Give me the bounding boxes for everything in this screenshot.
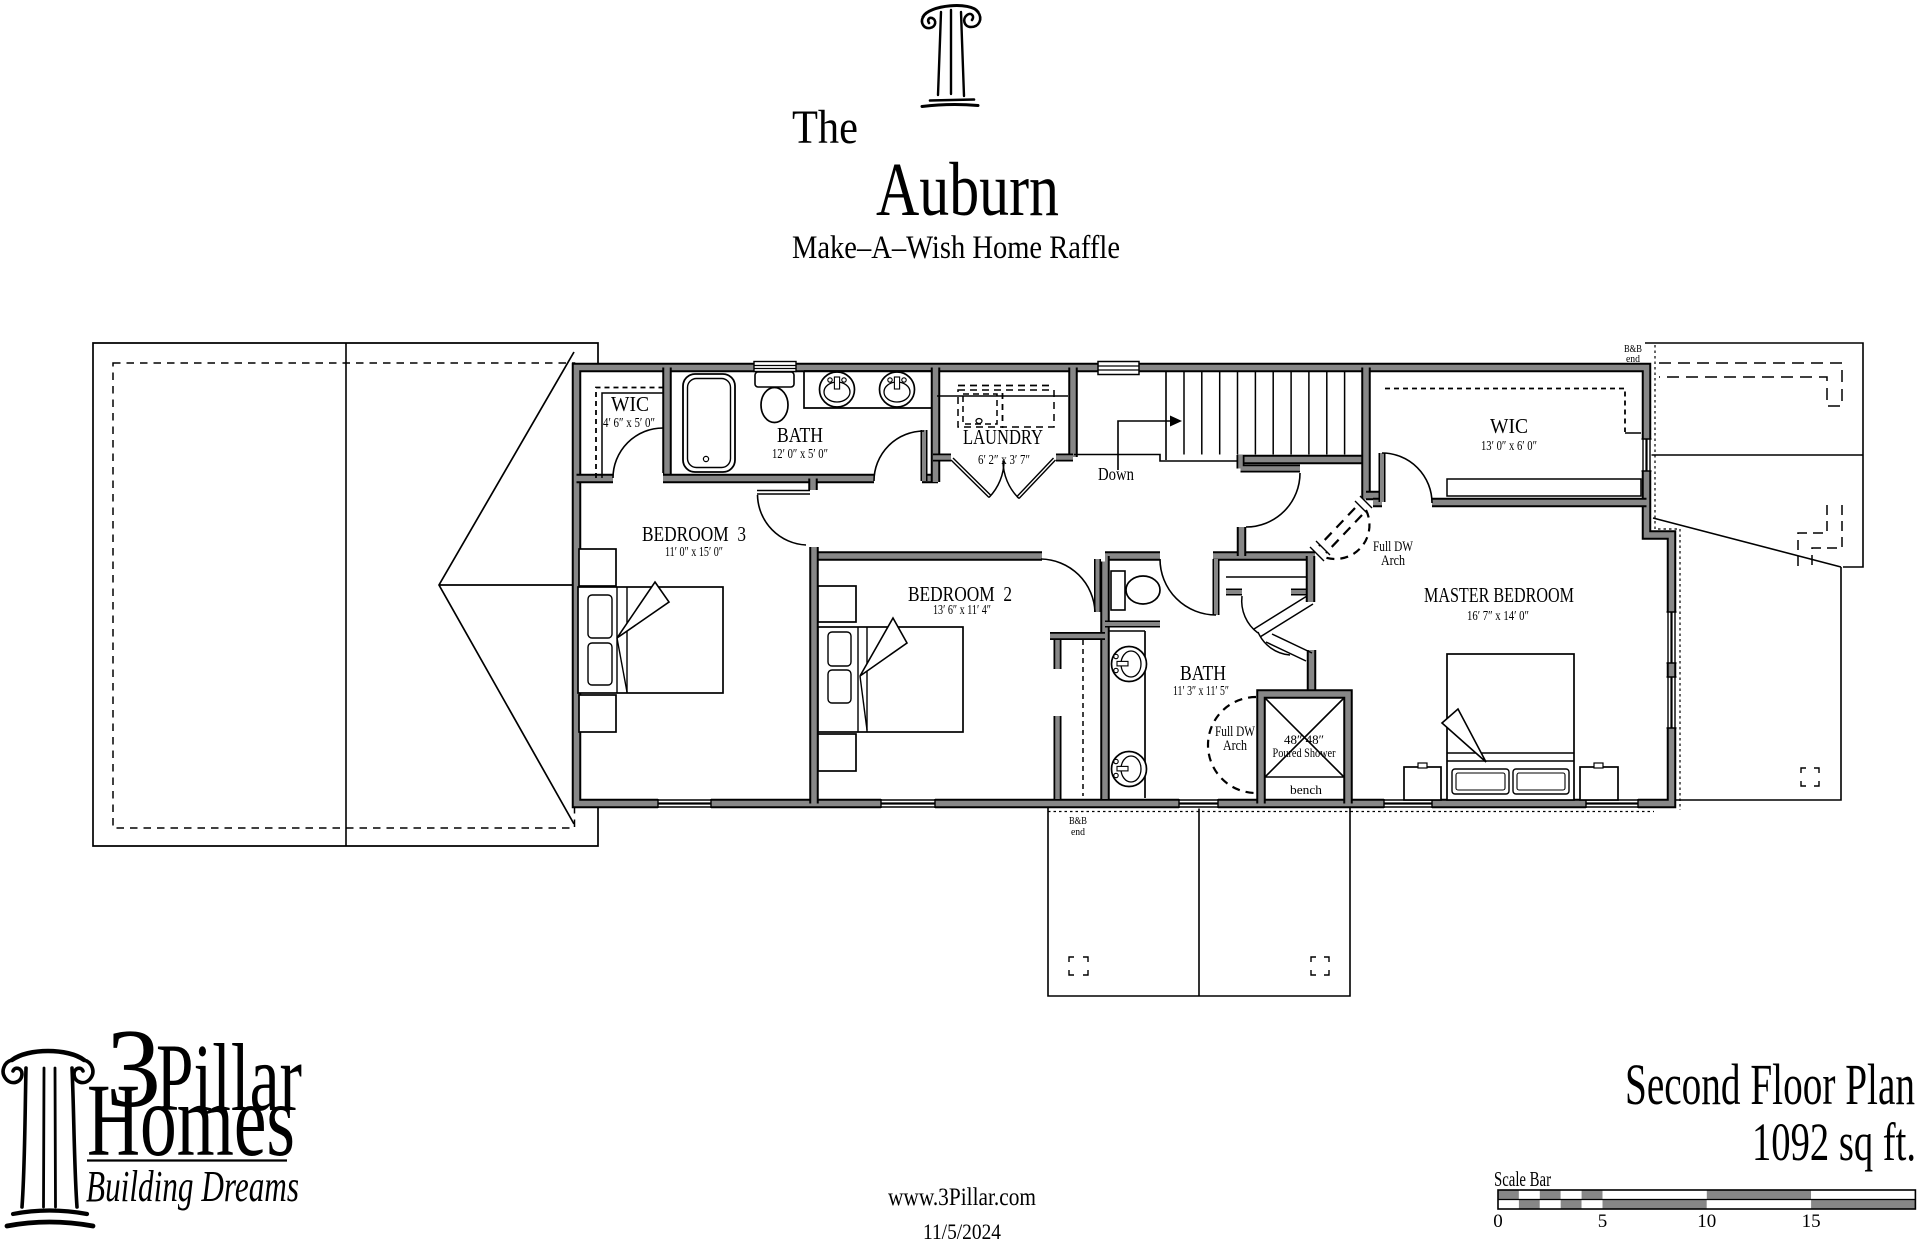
- svg-text:Arch: Arch: [1381, 553, 1405, 569]
- svg-text:11/5/2024: 11/5/2024: [923, 1219, 1001, 1242]
- svg-text:Scale Bar: Scale Bar: [1494, 1167, 1551, 1191]
- svg-text:end: end: [1626, 354, 1640, 365]
- svg-text:B&B: B&B: [1069, 816, 1087, 827]
- svg-text:WIC: WIC: [611, 392, 649, 416]
- svg-text:Make–A–Wish Home Raffle: Make–A–Wish Home Raffle: [792, 230, 1120, 266]
- svg-text:Poured Shower: Poured Shower: [1273, 745, 1337, 760]
- svg-text:15: 15: [1802, 1211, 1821, 1232]
- svg-text:The: The: [792, 101, 858, 154]
- svg-text:16′ 7″ x 14′ 0″: 16′ 7″ x 14′ 0″: [1467, 609, 1529, 624]
- svg-text:5: 5: [1598, 1211, 1608, 1232]
- svg-text:Building Dreams: Building Dreams: [86, 1162, 299, 1211]
- svg-text:www.3Pillar.com: www.3Pillar.com: [888, 1184, 1036, 1211]
- svg-text:BATH: BATH: [777, 423, 823, 447]
- svg-text:LAUNDRY: LAUNDRY: [963, 425, 1043, 449]
- svg-text:BATH: BATH: [1180, 661, 1226, 685]
- svg-text:13′ 6″ x 11′ 4″: 13′ 6″ x 11′ 4″: [933, 603, 991, 618]
- svg-text:Down: Down: [1098, 464, 1134, 484]
- svg-text:BEDROOM 3: BEDROOM 3: [642, 522, 746, 546]
- svg-text:1092 sq ft.: 1092 sq ft.: [1752, 1112, 1916, 1172]
- svg-text:13′ 0″ x 6′ 0″: 13′ 0″ x 6′ 0″: [1481, 439, 1537, 454]
- svg-text:10: 10: [1697, 1211, 1716, 1232]
- svg-text:11′ 0″ x 15′ 0″: 11′ 0″ x 15′ 0″: [665, 545, 723, 560]
- svg-text:end: end: [1071, 827, 1085, 838]
- svg-text:Auburn: Auburn: [876, 148, 1059, 232]
- svg-text:6′ 2″ x 3′ 7″: 6′ 2″ x 3′ 7″: [978, 453, 1030, 468]
- svg-text:11′ 3″ x 11′ 5″: 11′ 3″ x 11′ 5″: [1173, 684, 1229, 699]
- svg-text:Arch: Arch: [1223, 738, 1247, 754]
- svg-text:Second Floor Plan: Second Floor Plan: [1625, 1052, 1915, 1117]
- svg-text:WIC: WIC: [1490, 414, 1528, 438]
- svg-text:12′ 0″ x 5′ 0″: 12′ 0″ x 5′ 0″: [772, 447, 828, 462]
- svg-text:MASTER BEDROOM: MASTER BEDROOM: [1424, 583, 1574, 607]
- svg-text:4′ 6″ x 5′ 0″: 4′ 6″ x 5′ 0″: [603, 416, 655, 431]
- svg-text:0: 0: [1493, 1211, 1503, 1232]
- svg-text:bench: bench: [1290, 782, 1323, 797]
